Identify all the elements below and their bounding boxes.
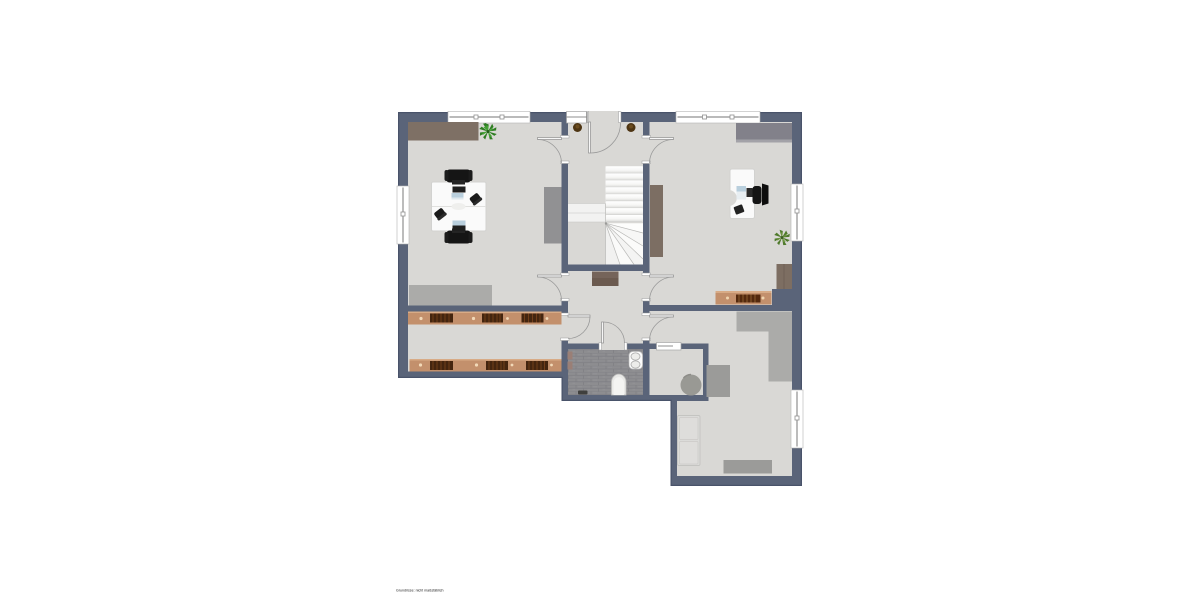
svg-text:Grundrisse: nicht maßstäblich: Grundrisse: nicht maßstäblich	[396, 589, 444, 593]
